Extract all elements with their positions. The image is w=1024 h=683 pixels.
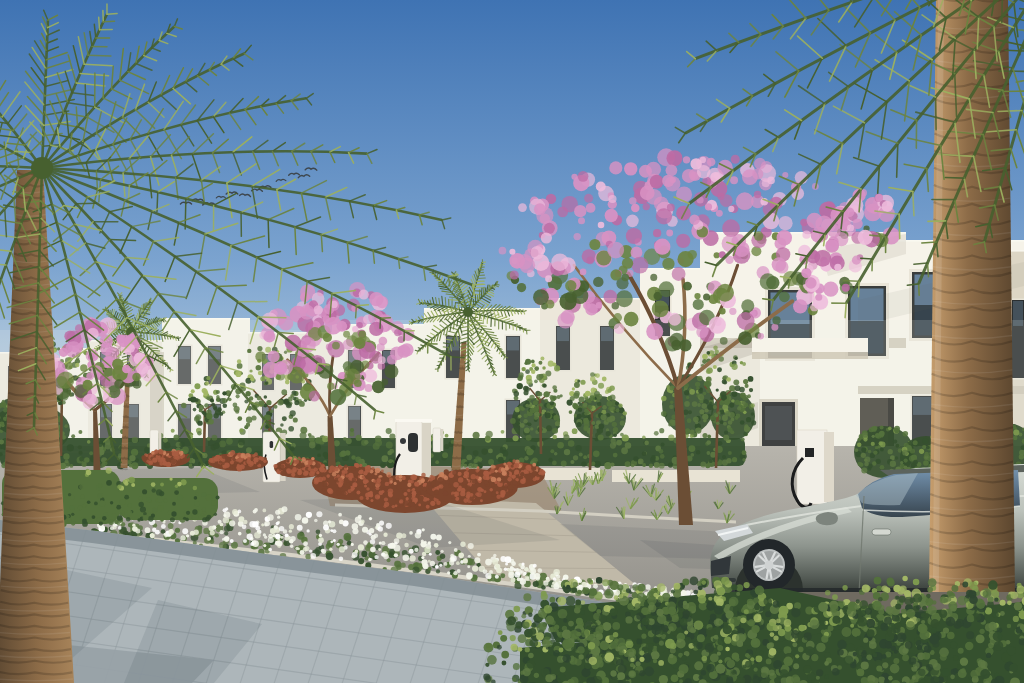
street-scene-rendering (0, 0, 1024, 683)
charger-screen (408, 433, 418, 452)
hub-cap (765, 561, 774, 570)
wall-charger-body (797, 430, 827, 504)
charger-socket (400, 438, 406, 444)
entry-canopy (752, 338, 868, 352)
scene-canvas (0, 0, 1024, 683)
charger-top (395, 419, 432, 422)
right-palm-trunk (928, 0, 1016, 683)
wall-charger-socket (805, 448, 814, 457)
door-handle (872, 529, 891, 535)
wall-ev-charger (792, 430, 834, 507)
wall-charger-side (824, 432, 834, 502)
entry-canopy-shadow (752, 352, 868, 359)
